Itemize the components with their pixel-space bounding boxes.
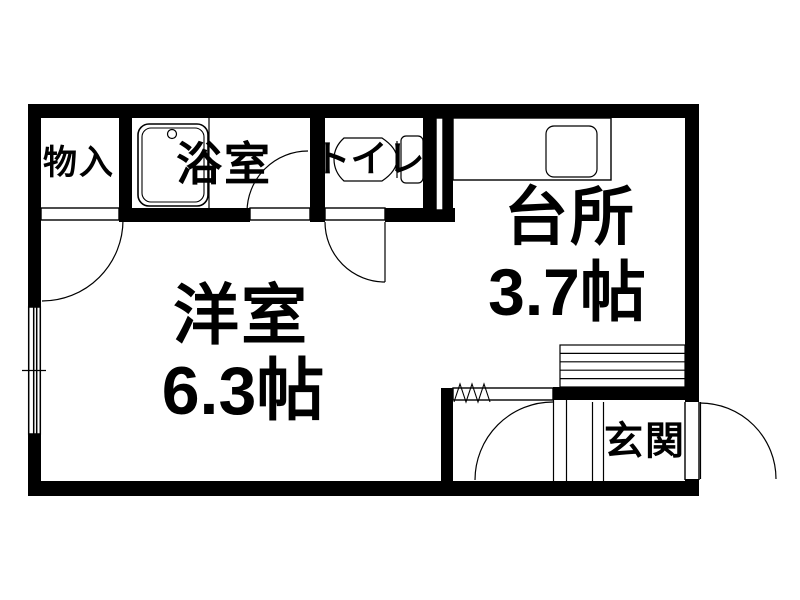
wall-closet-bath-divider: [119, 118, 132, 222]
wall-left-upper: [28, 104, 41, 307]
wall-kitchen-strip: [443, 118, 453, 222]
kitchen-size-label: 3.7帖: [488, 259, 646, 325]
front-door-swing-arc: [700, 403, 776, 479]
shoe-cabinet-icon: [560, 345, 685, 387]
sink-icon: [546, 126, 597, 177]
wall-right: [685, 104, 699, 402]
bathroom-door-opening: [250, 208, 310, 220]
closet-opening: [41, 208, 119, 220]
western-room-size-label: 6.3帖: [162, 357, 325, 425]
wall-entrance-top: [553, 387, 699, 400]
wall-right-bottom-stub: [685, 479, 699, 496]
toilet-label: トイレ: [314, 141, 425, 178]
wall-entrance-left: [441, 388, 453, 481]
western-room-label: 洋室: [173, 282, 309, 348]
wall-bottom: [28, 481, 699, 496]
closet-label: 物入: [43, 146, 115, 180]
kitchen-fixtures: [453, 118, 611, 180]
floor-plan: [0, 0, 800, 600]
toilet-door-opening: [325, 208, 385, 220]
kitchen-label: 台所: [504, 185, 636, 249]
window-symbol: [22, 307, 46, 434]
entrance-step-lines: [554, 400, 604, 481]
wall-bath-bottom: [119, 208, 250, 222]
wall-toilet-right: [423, 118, 436, 222]
pipe-slot: [436, 118, 443, 210]
shoe-cabinet-outline: [560, 345, 685, 387]
bathroom-label: 浴室: [176, 141, 272, 187]
closet-door-swing-arc: [42, 220, 123, 301]
wall-top: [28, 104, 699, 118]
entrance-label: 玄関: [604, 423, 686, 462]
hall-door-swing-arc: [475, 402, 553, 480]
toilet-door-swing-arc: [325, 222, 385, 282]
kitchen-entrance-opening: [453, 388, 553, 400]
